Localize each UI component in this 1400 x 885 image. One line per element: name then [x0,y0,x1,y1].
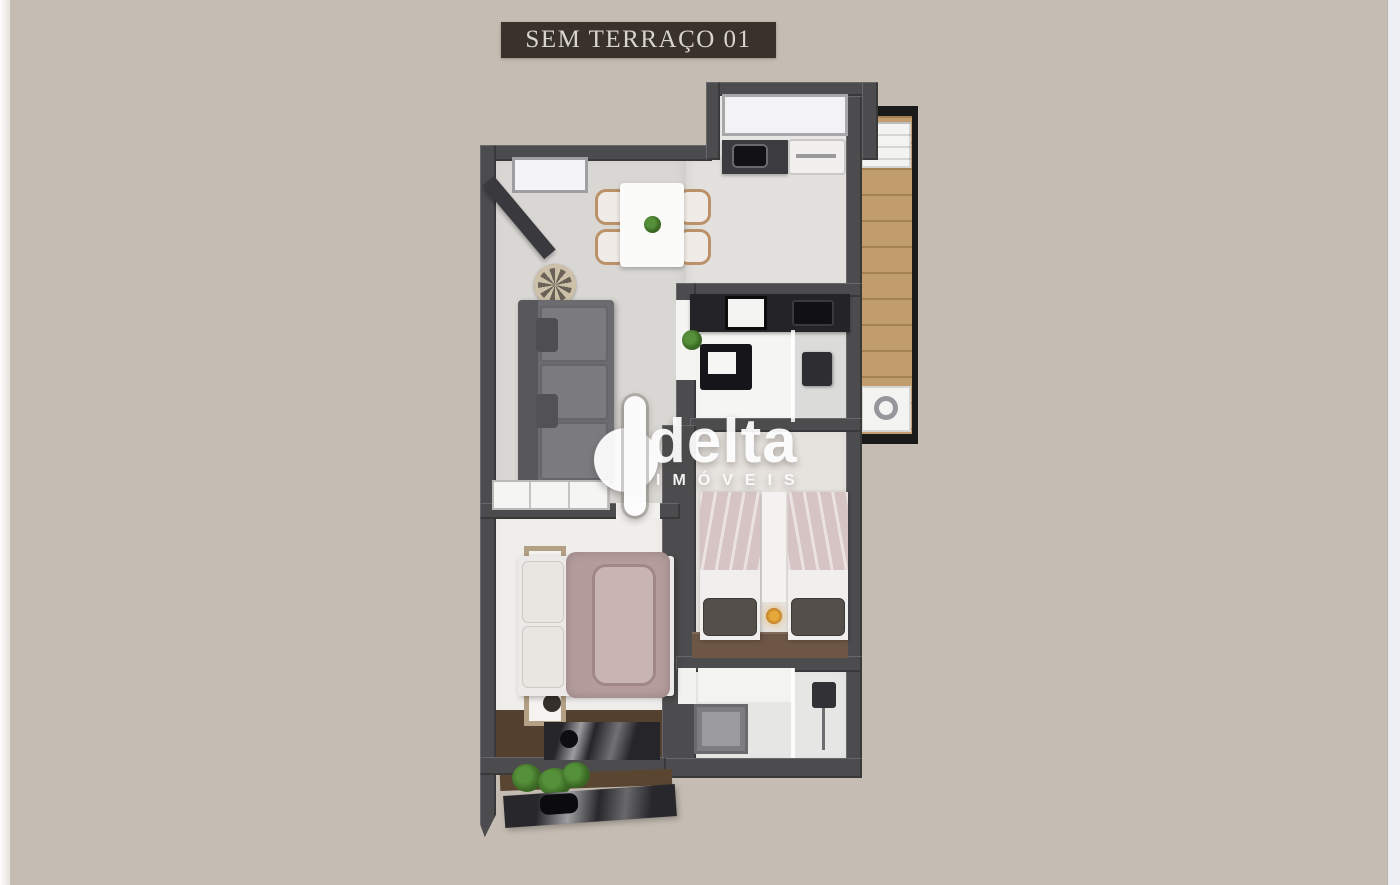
shower-stem-icon [822,708,825,750]
sofa-back [518,300,538,484]
watermark: delta IMÓVEIS [560,380,860,550]
bathroom-sink-icon [728,299,764,327]
bathroom-social-sink-icon [702,712,740,746]
door-bathroom-social [678,668,696,704]
bathroom-social-wall-tile [698,668,794,702]
wall-kitchen-box-right [862,82,878,160]
wall-outer-left [480,145,496,761]
sofa-throw-pillow [536,318,558,352]
twin-bed-right-pillow [791,598,845,636]
sofa-throw-pillow [536,394,558,428]
wall-bathroom-social-bottom [662,758,862,778]
candle-icon [766,608,782,624]
living-window [512,157,588,193]
wall-kitchen-box-left [706,82,720,160]
kitchen-floor [686,155,856,290]
watermark-subtitle: IMÓVEIS [656,472,807,490]
plan-title: SEM TERRAÇO 01 [525,26,751,54]
left-edge-strip [0,0,10,885]
balcony-counter-object [539,793,578,816]
bathroom-counter-appliance [792,300,834,326]
dresser-object-icon [560,730,578,748]
title-banner: SEM TERRAÇO 01 [501,22,776,58]
fridge-handle-icon [796,154,836,158]
floorplan-image: SEM TERRAÇO 01 [0,0,1400,885]
twin-bed-left-pillow [703,598,757,636]
double-bed-big-pillow [592,564,656,686]
kitchen-window [722,94,848,136]
right-edge-strip [1387,0,1400,885]
dining-chair [680,232,708,262]
watermark-logo-bar-icon [624,396,646,516]
double-bed-pillow [522,626,564,688]
dining-chair [680,192,708,222]
washing-machine-drum-icon [874,396,898,420]
balcony-plant-icon [562,762,590,788]
bathroom-plant-icon [682,330,702,350]
shower-glass-panel-2 [791,668,795,758]
vanity-mirror-reflection [708,352,736,374]
nightstand-lamp-icon [543,694,561,712]
double-bed-pillow [522,561,564,623]
kitchen-sink-icon [734,146,766,166]
watermark-brand: delta [648,406,798,477]
table-plant-icon [644,216,661,233]
shower-head-2 [812,682,836,708]
